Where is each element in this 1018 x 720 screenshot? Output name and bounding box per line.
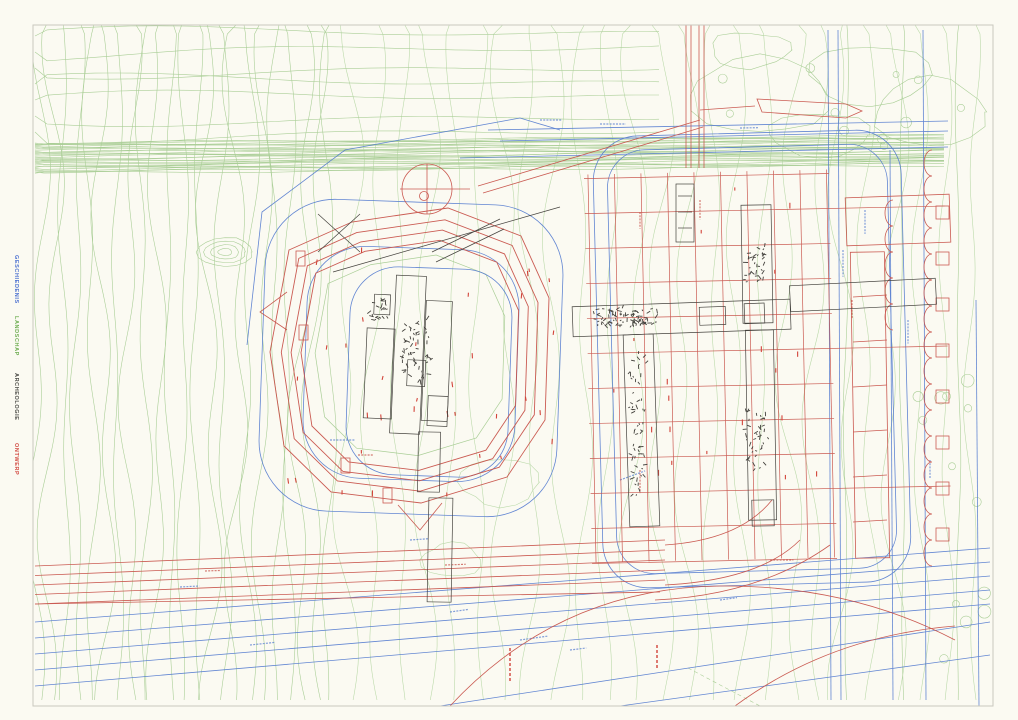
paper-background <box>0 0 1018 720</box>
legend-archeologie: ARCHEOLOGIE <box>13 373 19 421</box>
site-plan-page: GESCHIEDENIS LANDSCHAP ARCHEOLOGIE ONTWE… <box>0 0 1018 720</box>
site-plan-svg <box>0 0 1018 720</box>
legend-geschiedenis: GESCHIEDENIS <box>13 255 19 304</box>
legend-ontwerp: ONTWERP <box>13 443 19 475</box>
legend-landschap: LANDSCHAP <box>13 316 19 356</box>
